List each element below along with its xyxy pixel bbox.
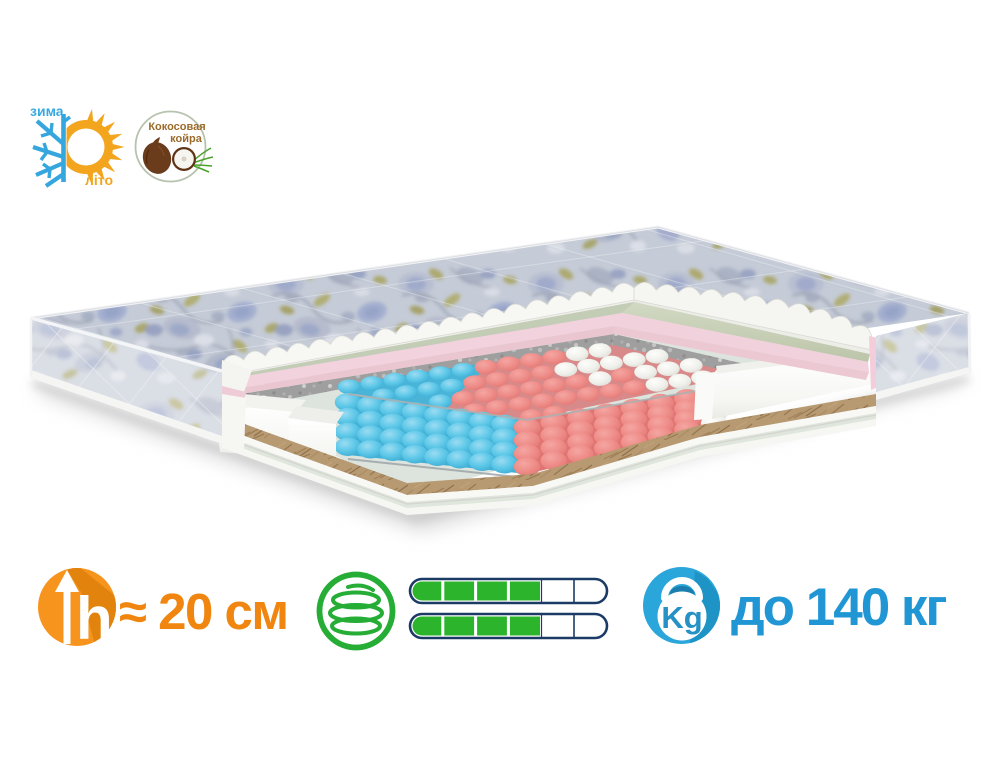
svg-text:літо: літо — [85, 172, 113, 188]
svg-text:≈ 20 см: ≈ 20 см — [119, 583, 288, 640]
svg-text:до 140 кг: до 140 кг — [731, 578, 946, 637]
svg-text:койра: койра — [170, 133, 203, 145]
svg-text:Kg: Kg — [661, 600, 702, 635]
svg-text:зима: зима — [30, 103, 64, 119]
svg-text:Кокосовая: Кокосовая — [148, 121, 205, 133]
svg-text:h: h — [76, 585, 113, 652]
